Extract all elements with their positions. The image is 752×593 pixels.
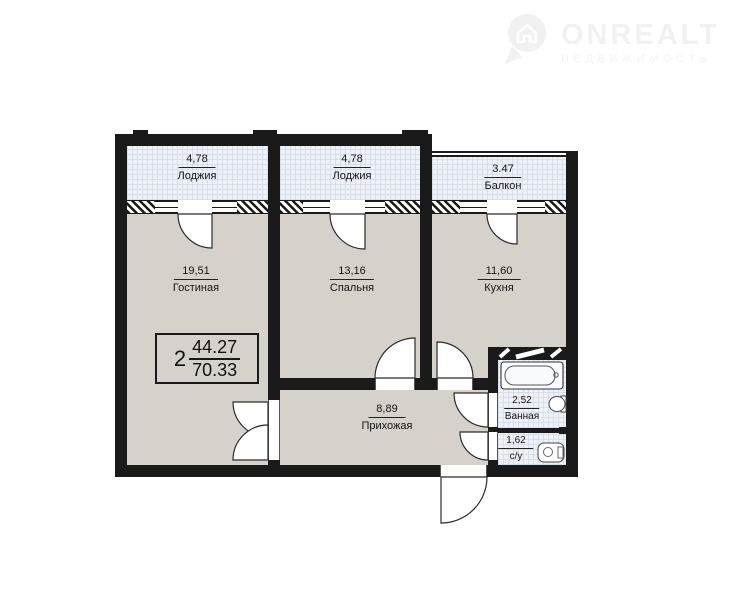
room-area: 11,60 bbox=[478, 264, 521, 280]
room-area: 2,52 bbox=[504, 394, 539, 409]
window bbox=[303, 200, 330, 214]
room-name: Ванная bbox=[504, 409, 539, 423]
room-area: 4,78 bbox=[333, 152, 370, 168]
door-opening bbox=[488, 393, 498, 427]
balcony-rail bbox=[432, 151, 578, 157]
wall-vent-block bbox=[488, 347, 578, 360]
room-name: Прихожая bbox=[362, 418, 413, 433]
window bbox=[212, 200, 237, 214]
room-label-balcony: 3.47 Балкон bbox=[484, 162, 521, 194]
window bbox=[460, 200, 487, 214]
room-label-hallway: 8,89 Прихожая bbox=[362, 402, 413, 434]
wall-hatch bbox=[432, 200, 460, 214]
room-name: Балкон bbox=[484, 178, 521, 193]
watermark-tagline: НЕДВИЖИМОСТЬ bbox=[561, 53, 720, 65]
room-label-bedroom: 13,16 Спальня bbox=[330, 264, 374, 296]
room-name: Спальня bbox=[330, 280, 374, 295]
house-pin-icon bbox=[503, 12, 549, 66]
wall-hatch bbox=[280, 200, 303, 214]
floor-plan: 4,78 Лоджия 4,78 Лоджия 3.47 Балкон 19,5… bbox=[115, 130, 580, 478]
wall-hatch bbox=[237, 200, 268, 214]
room-bedroom bbox=[280, 214, 420, 378]
room-area: 1,62 bbox=[498, 434, 533, 449]
window bbox=[365, 200, 385, 214]
door-opening bbox=[437, 378, 473, 390]
wall-bath-wc bbox=[498, 428, 566, 433]
wall-stub bbox=[133, 130, 148, 135]
rooms-count: 2 bbox=[174, 346, 186, 372]
living-area: 44.27 bbox=[189, 337, 240, 360]
door-opening bbox=[330, 200, 365, 214]
door-opening bbox=[487, 200, 517, 214]
door-opening bbox=[488, 432, 498, 460]
room-label-loggia-1: 4,78 Лоджия bbox=[178, 152, 217, 184]
double-door-opening bbox=[268, 400, 280, 460]
room-area: 19,51 bbox=[174, 264, 218, 280]
room-label-living: 19,51 Гостиная bbox=[173, 264, 219, 296]
room-area: 4,78 bbox=[178, 152, 215, 168]
room-area: 13,16 bbox=[330, 264, 374, 280]
wall-hallway-top bbox=[415, 378, 437, 390]
room-label-kitchen: 11,60 Кухня bbox=[478, 264, 521, 296]
wall-hatch bbox=[545, 200, 566, 214]
wall-right bbox=[566, 151, 578, 477]
room-label-bathroom: 2,52 Ванная bbox=[504, 394, 539, 423]
wall-hatch bbox=[127, 200, 155, 214]
wall-left bbox=[115, 134, 127, 477]
room-name: Гостиная bbox=[173, 280, 219, 295]
window bbox=[155, 200, 178, 214]
window bbox=[517, 200, 545, 214]
room-label-loggia-2: 4,78 Лоджия bbox=[333, 152, 372, 184]
apartment-summary-box: 2 44.27 70.33 bbox=[155, 333, 259, 384]
floorplan-canvas: ONREALT НЕДВИЖИМОСТЬ bbox=[0, 0, 752, 593]
wall-bottom bbox=[115, 465, 440, 477]
room-name: Лоджия bbox=[178, 168, 217, 183]
watermark: ONREALT НЕДВИЖИМОСТЬ bbox=[503, 12, 720, 66]
wall-bottom bbox=[487, 465, 578, 477]
wall-bedroom-kitchen bbox=[420, 134, 432, 390]
wall-living-bedroom bbox=[268, 134, 280, 400]
wall-pier bbox=[559, 427, 566, 434]
room-label-wc: 1,62 с/у bbox=[498, 434, 533, 463]
total-area: 70.33 bbox=[189, 360, 240, 381]
area-fraction: 44.27 70.33 bbox=[189, 337, 240, 380]
watermark-brand: ONREALT bbox=[561, 20, 720, 50]
room-name: Кухня bbox=[478, 280, 521, 295]
wall-bathroom-left bbox=[488, 347, 498, 393]
door-opening bbox=[178, 200, 212, 214]
wall-hatch bbox=[385, 200, 420, 214]
room-name: Лоджия bbox=[333, 168, 372, 183]
room-area: 8,89 bbox=[368, 402, 405, 418]
entrance-door-arc bbox=[441, 477, 487, 523]
room-name: с/у bbox=[498, 449, 533, 463]
door-opening bbox=[375, 378, 415, 390]
wall-hallway-top bbox=[280, 378, 375, 390]
entrance-opening bbox=[440, 465, 487, 477]
room-area: 3.47 bbox=[484, 162, 521, 178]
